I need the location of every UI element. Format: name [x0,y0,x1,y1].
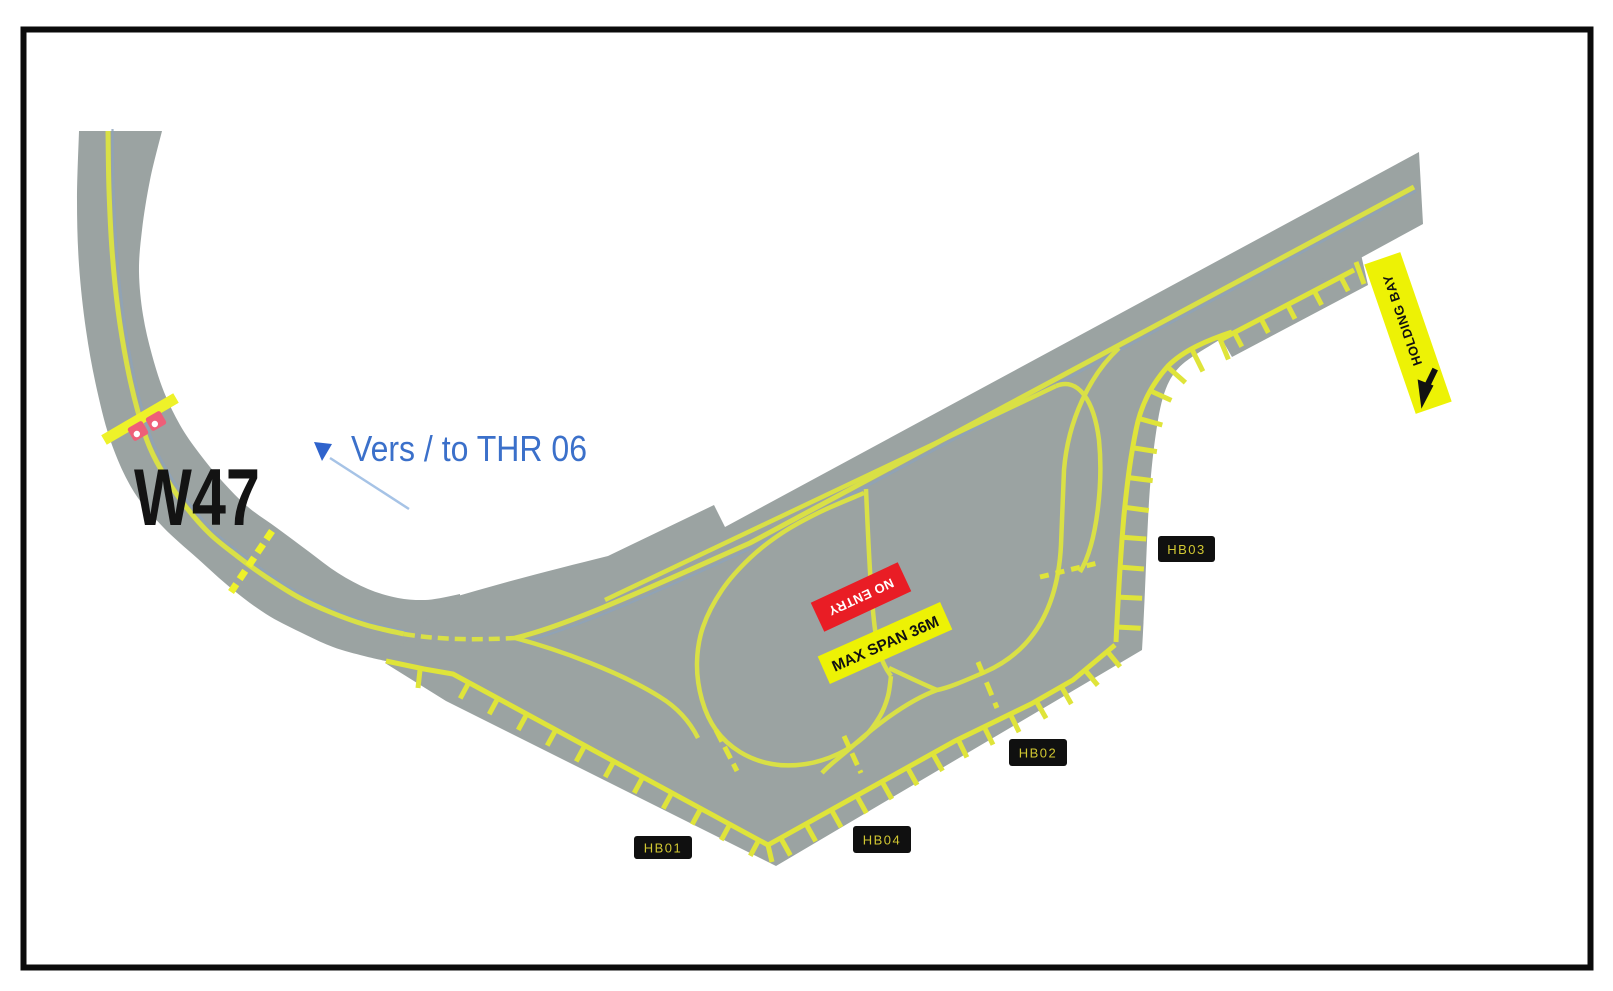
svg-text:HB04: HB04 [863,833,902,848]
svg-text:HB03: HB03 [1167,542,1206,557]
svg-text:W47: W47 [134,453,260,543]
svg-text:HB01: HB01 [644,841,683,856]
svg-text:Vers / to THR 06: Vers / to THR 06 [351,428,587,469]
svg-text:HB02: HB02 [1019,746,1058,761]
